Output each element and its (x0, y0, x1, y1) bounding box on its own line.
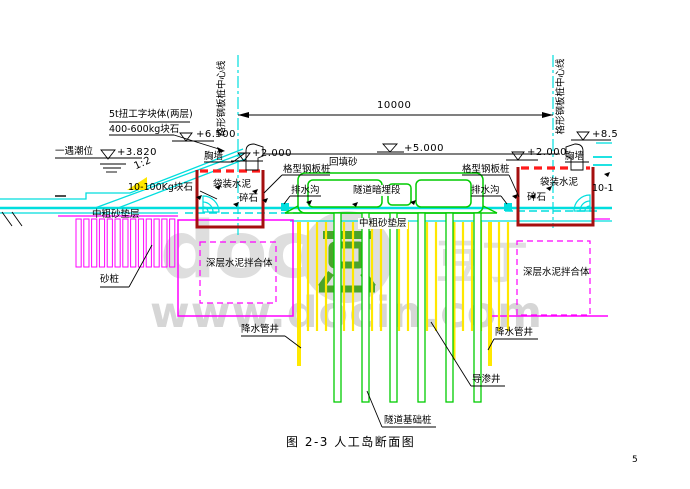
backfill-sand-label: 回填砂 (329, 157, 358, 168)
tide-level-value: +3.820 (117, 147, 157, 158)
elevation-85-right: +8.5 (592, 129, 618, 140)
drainage-ditch-label-left: 排水沟 (291, 185, 320, 196)
parapet-wall-label-left: 胸墙 (204, 151, 223, 162)
sand-cushion-label-left: 中粗砂垫层 (92, 209, 140, 220)
seepage-well-label: 导渗井 (472, 374, 501, 385)
tide-level-label: 一遇潮位 (55, 146, 93, 157)
dewatering-well-label-left: 降水管井 (241, 324, 279, 335)
elevation-symbol-5000 (377, 144, 404, 152)
cell-sheet-pile-label-left: 格型钢板桩 (283, 164, 331, 175)
bagged-cement-label-right: 袋装水泥 (540, 177, 578, 188)
armor-blocks-label-line1: 5t扭工字块体(两层) (109, 109, 193, 120)
dimension-10000: 10000 (377, 100, 411, 111)
centerline-label-left: 格形钢板桩中心线 (217, 61, 230, 137)
figure-caption: 图 2-3 人工岛断面图 (286, 437, 415, 448)
rock-label-left: 10-100Kg块石 (128, 182, 193, 193)
annotations (2, 112, 611, 427)
sand-pile-hatch (76, 219, 175, 267)
sand-piles-label: 砂桩 (100, 274, 119, 285)
elevation-symbol-85-right (577, 132, 589, 140)
tunnel-foundation-piles-label: 隧道基础桩 (384, 415, 432, 426)
deep-cement-dashed-left (200, 242, 276, 303)
tunnel-buried-section-label: 隧道暗埋段 (352, 185, 402, 196)
page-number: 5 (632, 455, 638, 466)
elevation-2000-right: +2.000 (527, 147, 567, 158)
parapet-wall-label-right: 胸墙 (565, 151, 584, 162)
section-linework (0, 0, 690, 489)
deep-cement-dashed-right (517, 241, 590, 315)
rock-label-right: 10-100Kg块石 (592, 183, 614, 194)
elevation-5000: +5.000 (404, 143, 444, 154)
drainage-ditch-left-symbol (281, 203, 289, 211)
centerline-label-right: 格形钢板桩中心线 (556, 59, 569, 135)
deep-cement-label-left: 深层水泥拌合体 (206, 258, 273, 269)
gravel-label-left: 碎石 (239, 193, 258, 204)
armor-blocks-label-line2: 400-600kg块石 (109, 124, 179, 135)
drawing-page: doc 豆丁 www.docin.com (0, 0, 690, 489)
bagged-cement-label-left: 袋装水泥 (213, 179, 251, 190)
sand-cushion-label-center: 中粗砂垫层 (358, 218, 408, 229)
deep-cement-label-right: 深层水泥拌合体 (523, 267, 590, 278)
drainage-ditch-right-symbol (504, 203, 512, 211)
cell-sheet-pile-label-right: 格型钢板桩 (462, 164, 510, 175)
elevation-2000-left: +2.000 (252, 148, 292, 159)
dewatering-well-label-right: 降水管井 (495, 327, 533, 338)
gravel-label-right: 碎石 (527, 192, 546, 203)
tunnel-cell-right (416, 180, 471, 207)
drainage-ditch-label-right: 排水沟 (471, 185, 500, 196)
